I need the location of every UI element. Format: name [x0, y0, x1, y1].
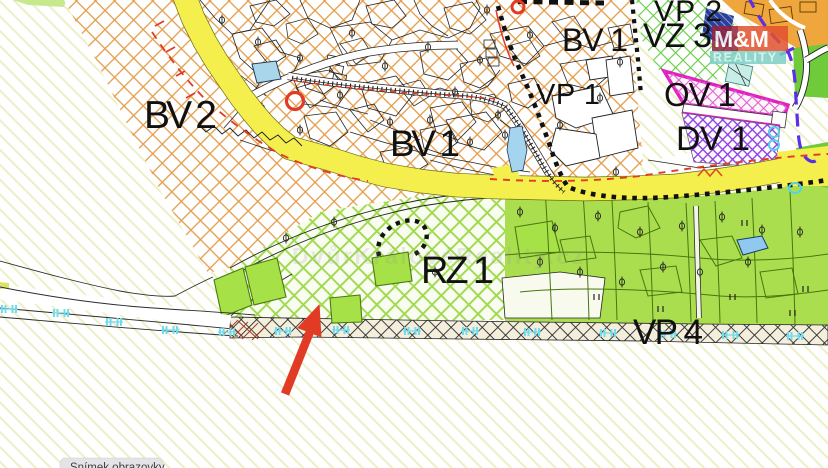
svg-text:BV 1: BV 1	[390, 123, 460, 164]
svg-text:RZ 1: RZ 1	[421, 250, 494, 292]
svg-text:VP 4: VP 4	[633, 313, 703, 352]
svg-text:REALITY: REALITY	[713, 51, 778, 65]
svg-text:BV 2: BV 2	[144, 94, 217, 137]
svg-text:VZ 3: VZ 3	[643, 17, 712, 55]
svg-text:VP 1: VP 1	[536, 79, 600, 111]
svg-text:M&M: M&M	[714, 26, 769, 52]
svg-text:Snímek obrazovky: Snímek obrazovky	[70, 462, 165, 468]
svg-text:BV 1: BV 1	[562, 22, 628, 58]
svg-text:DV 1: DV 1	[676, 120, 750, 158]
svg-text:OV 1: OV 1	[664, 76, 736, 113]
